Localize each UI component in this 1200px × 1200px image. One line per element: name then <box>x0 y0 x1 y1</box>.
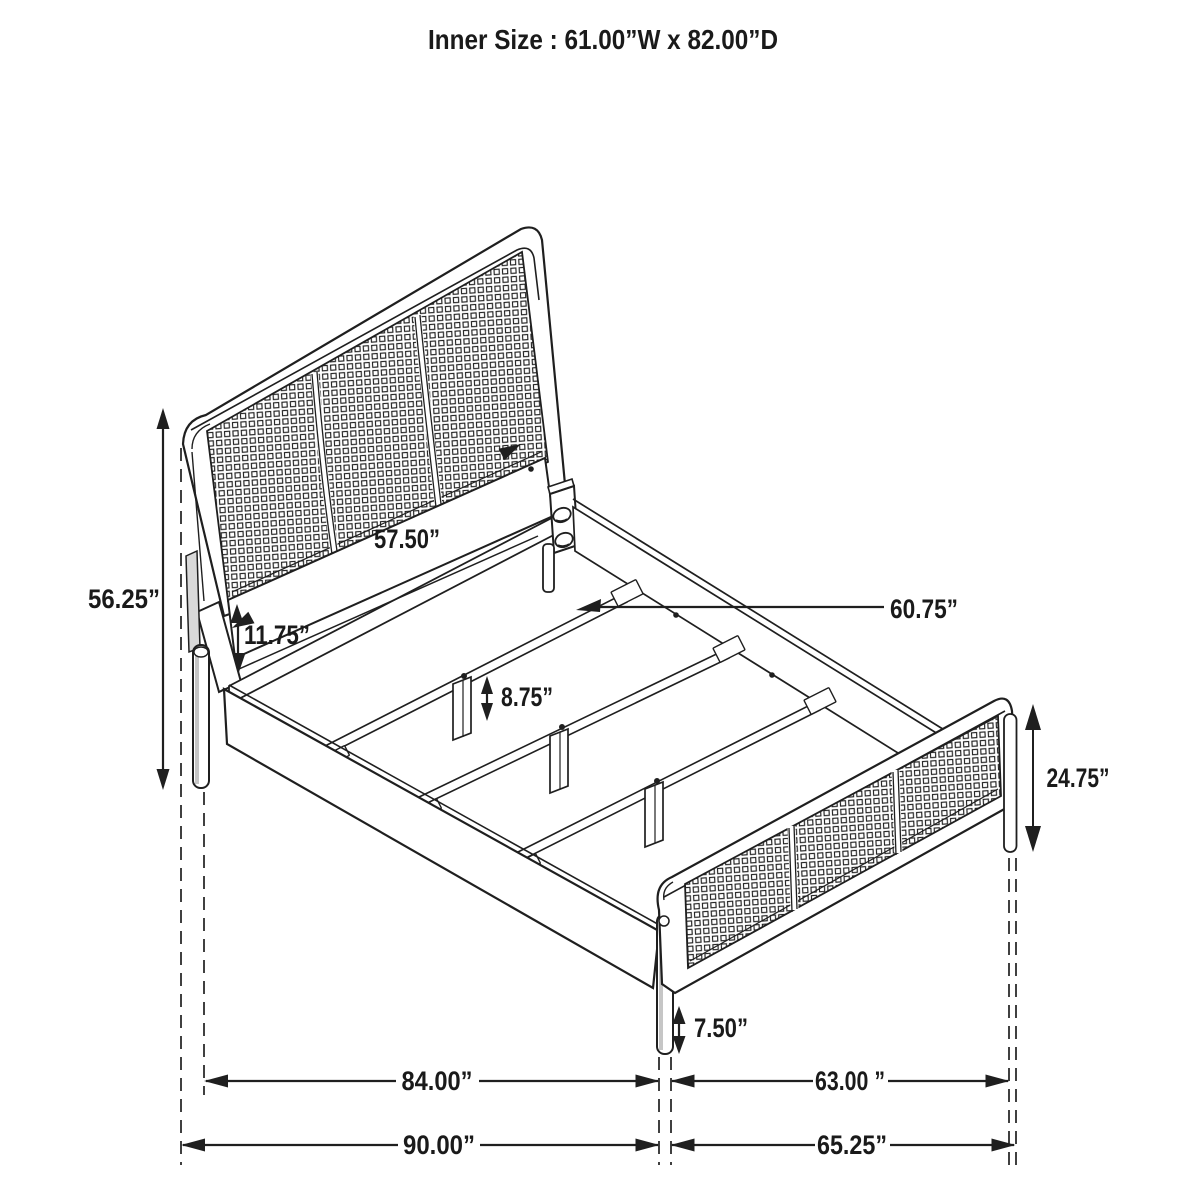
svg-text:60.75”: 60.75” <box>890 594 958 624</box>
svg-text:11.75”: 11.75” <box>244 620 310 650</box>
svg-text:Inner Size : 61.00”W x 82.00”D: Inner Size : 61.00”W x 82.00”D <box>428 24 778 55</box>
svg-text:84.00”: 84.00” <box>402 1066 473 1096</box>
svg-text:57.50”: 57.50” <box>374 524 440 554</box>
svg-text:63.00 ”: 63.00 ” <box>815 1066 885 1096</box>
svg-text:8.75”: 8.75” <box>501 682 553 712</box>
svg-text:24.75”: 24.75” <box>1047 763 1110 793</box>
svg-text:56.25”: 56.25” <box>88 584 160 614</box>
svg-text:90.00”: 90.00” <box>403 1130 475 1160</box>
svg-text:7.50”: 7.50” <box>694 1013 748 1043</box>
svg-text:65.25”: 65.25” <box>817 1130 887 1160</box>
